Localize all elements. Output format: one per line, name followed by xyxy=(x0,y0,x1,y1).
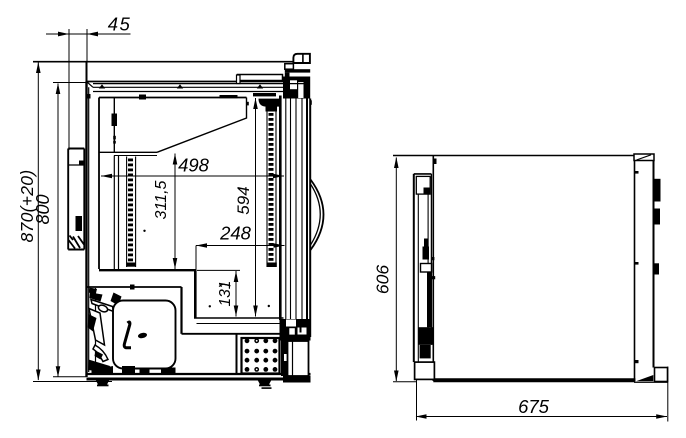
svg-text:248: 248 xyxy=(219,223,252,244)
svg-text:800: 800 xyxy=(33,194,53,224)
svg-text:498: 498 xyxy=(178,155,210,176)
svg-text:131: 131 xyxy=(217,281,234,307)
svg-text:594: 594 xyxy=(234,186,253,214)
svg-text:675: 675 xyxy=(518,396,550,417)
svg-text:606: 606 xyxy=(373,265,393,294)
svg-text:45: 45 xyxy=(108,14,132,35)
svg-text:311,5: 311,5 xyxy=(153,180,170,219)
